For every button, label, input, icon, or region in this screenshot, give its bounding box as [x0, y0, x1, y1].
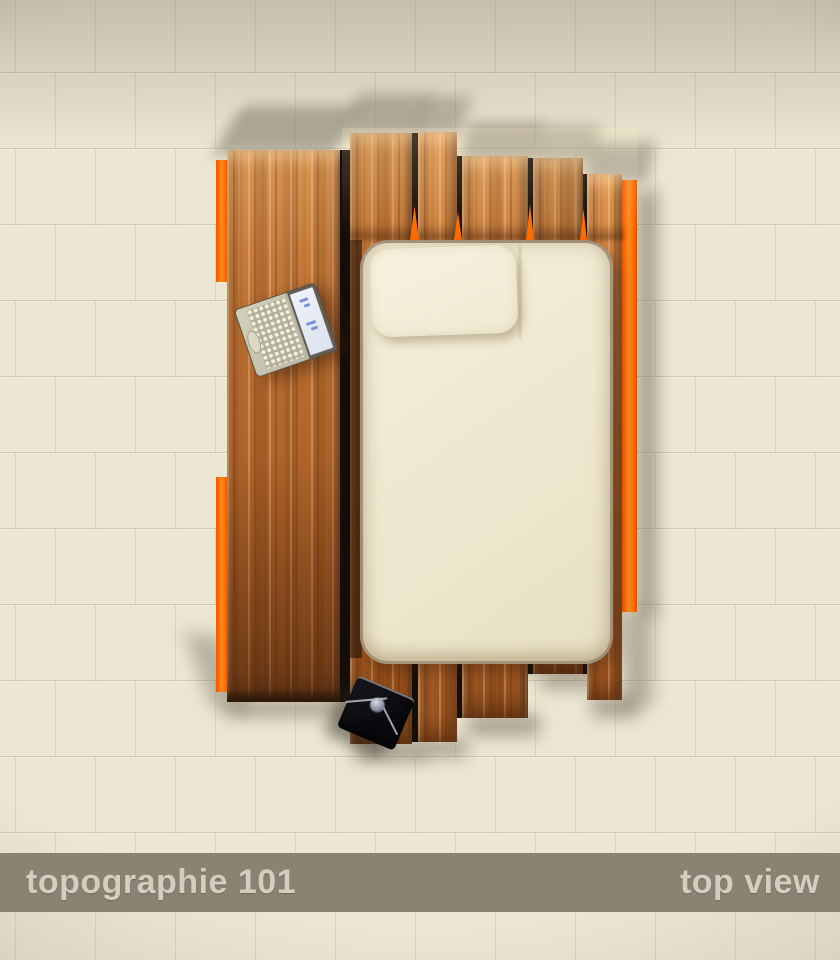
caption-title: topographie 101	[26, 863, 296, 902]
orange-edge-right	[622, 180, 637, 612]
pillow	[370, 244, 519, 337]
desk-bottom-edge	[227, 690, 340, 702]
sheet-fold-line	[519, 246, 521, 338]
bed-mattress	[360, 240, 613, 664]
screen-icon	[299, 297, 308, 303]
screen-icon	[306, 320, 316, 326]
caption-view-label: top view	[680, 863, 820, 902]
desk-shading	[227, 150, 340, 702]
caption-bar: topographie 101 top view	[0, 853, 840, 912]
screen-icon	[311, 325, 319, 330]
screen-icon	[304, 303, 311, 308]
scene-render: topographie 101 top view	[0, 0, 840, 960]
headboard-highlight	[342, 128, 638, 233]
desk-panel	[227, 150, 340, 702]
bed-desk-unit	[0, 0, 840, 960]
